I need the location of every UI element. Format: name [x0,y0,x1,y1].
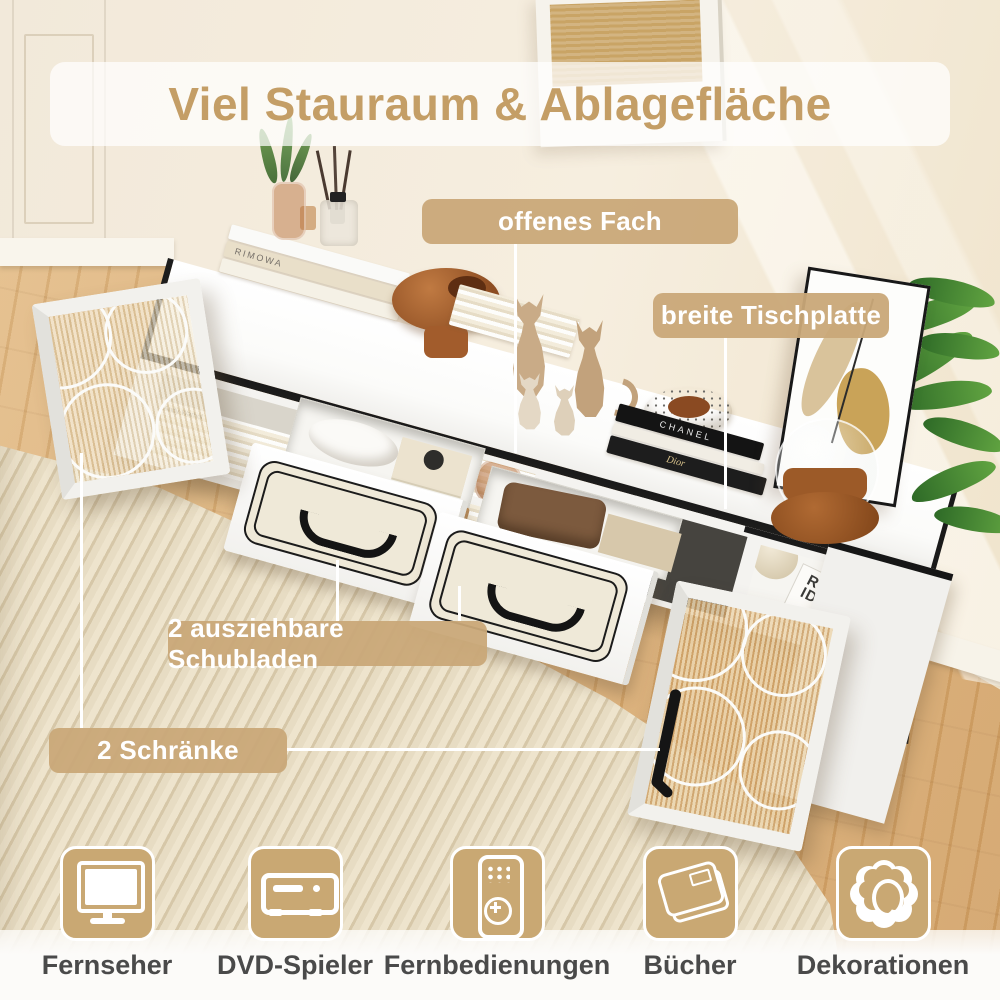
flower-icon [851,861,917,927]
plant-leaf [907,452,1000,509]
connector-cabinet-left [80,453,83,729]
terrarium-base [771,492,879,544]
bowl-inner [668,396,710,418]
glass-vase [272,182,306,240]
mushroom-vase-stem [424,326,468,358]
feature-tile-books [643,846,738,941]
callout-label: 2 ausziehbare Schubladen [168,613,487,675]
callout-label: breite Tischplatte [661,300,881,331]
diffuser-cap [330,192,346,202]
plant-leaf [933,501,1000,538]
book-spine-label: Dior [665,454,686,470]
remote-icon-plus [494,902,497,913]
callout-cabinets: 2 Schränke [49,728,287,773]
left-cabinet-door [32,278,231,500]
dvd-icon-foot [269,909,282,916]
feature-label-decor: Dekorationen [753,950,1000,981]
diffuser-jar [320,200,358,246]
callout-label: offenes Fach [498,206,662,237]
feature-tile-remote [450,846,545,941]
feature-tile-decor [836,846,931,941]
connector-cabinet-right [286,748,660,751]
book-emblem [421,448,446,473]
tv-icon-base [90,918,125,924]
remote-icon-dpad [484,897,512,925]
dvd-icon-slot [273,885,303,892]
callout-drawers: 2 ausziehbare Schubladen [168,621,487,666]
door-hinge [49,397,56,404]
callout-open-shelf: offenes Fach [422,199,738,244]
wall-molding [12,0,14,252]
connector-open-shelf [514,243,517,453]
callout-tabletop: breite Tischplatte [653,293,889,338]
plant-leaf [920,410,1000,459]
connector-tabletop [724,337,727,509]
door-hinge [38,328,45,335]
feature-tile-dvd [248,846,343,941]
remote-icon-buttons [486,865,510,883]
baseboard-left [0,238,174,266]
dvd-icon-foot [309,909,322,916]
title-banner: Viel Stauraum & Ablagefläche [50,62,950,146]
dvd-icon-dot [313,885,320,892]
callout-label: 2 Schränke [97,735,239,766]
product-infographic: Andy Warhol RAUM IDEEN [0,0,1000,1000]
tv-icon [77,861,145,913]
door-hinge [60,466,67,473]
feature-tile-tv [60,846,155,941]
page-title: Viel Stauraum & Ablagefläche [168,77,831,131]
